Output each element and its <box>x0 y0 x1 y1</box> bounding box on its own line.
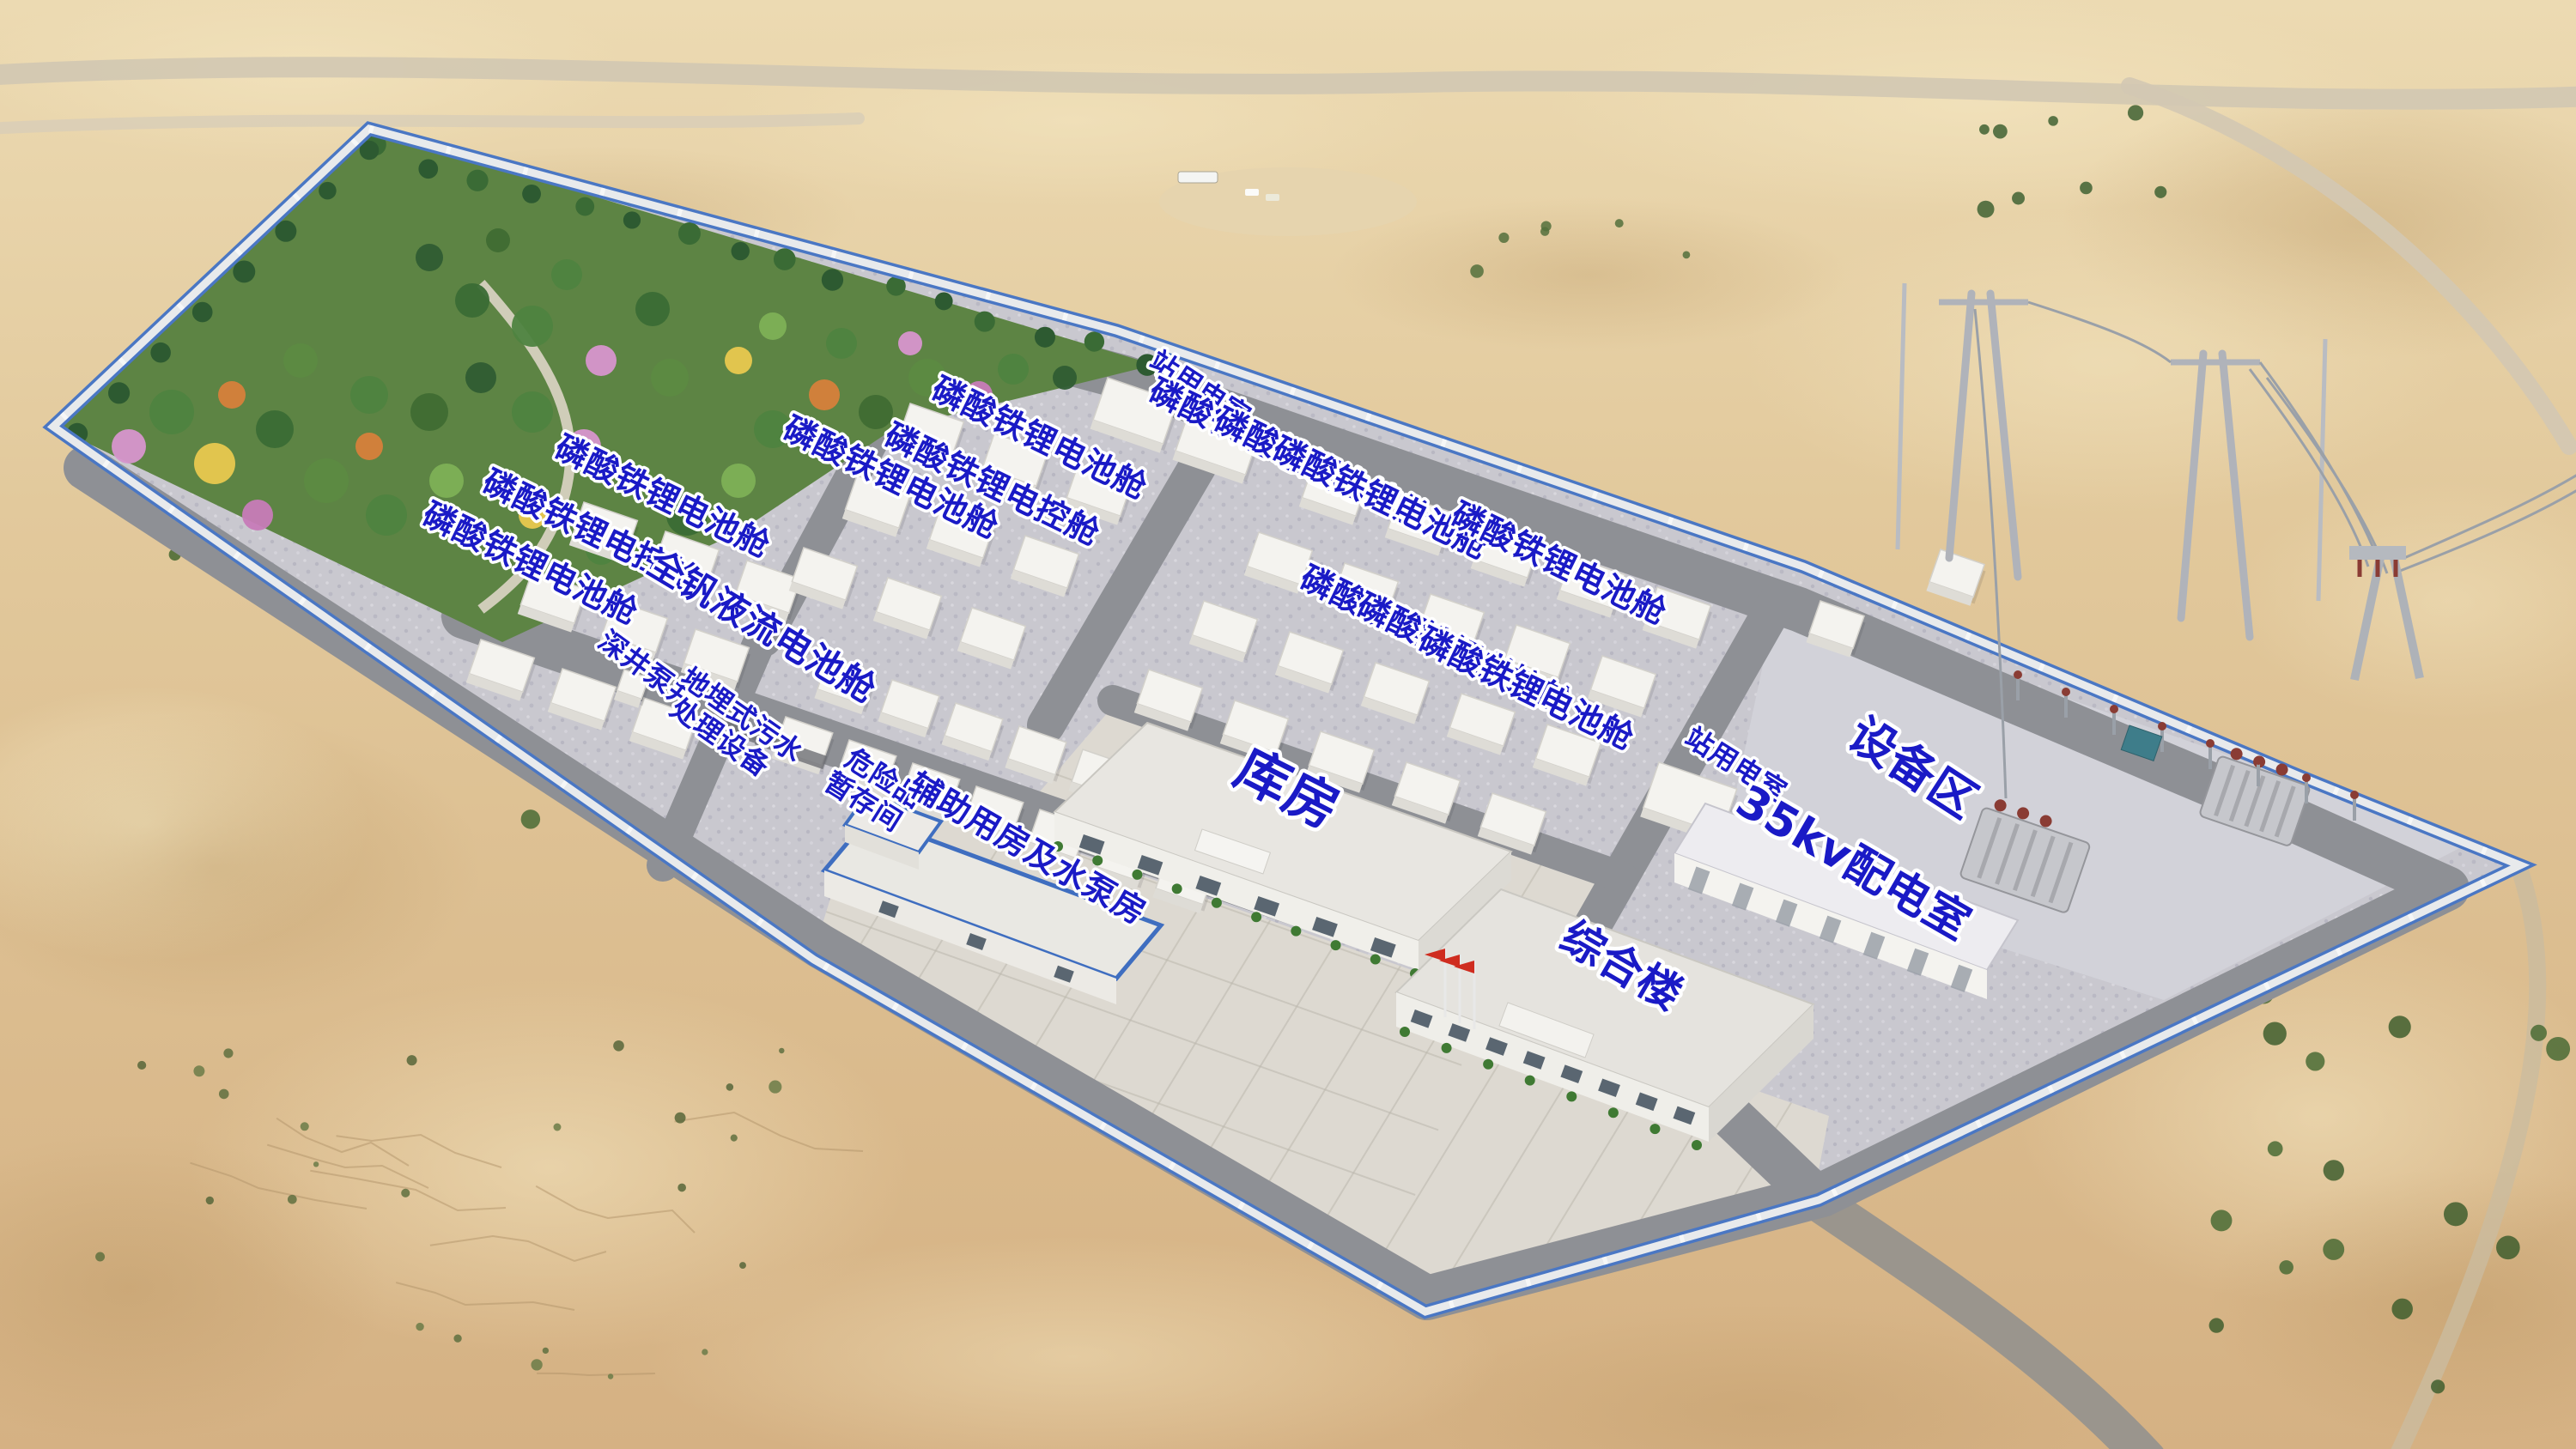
shrub <box>1978 201 1995 218</box>
tree <box>826 328 857 359</box>
shrub <box>1498 233 1509 243</box>
conifer-tree <box>319 182 337 200</box>
shrub <box>2209 1318 2224 1332</box>
conifer-tree <box>233 260 255 282</box>
shrub <box>2391 1299 2412 1319</box>
shrub <box>219 1089 229 1100</box>
conifer-tree <box>1035 327 1055 348</box>
tree <box>998 354 1029 385</box>
shrub <box>2496 1236 2520 1260</box>
conifer-tree <box>774 248 796 270</box>
tree <box>586 345 617 376</box>
hedge <box>1483 1059 1493 1070</box>
shrub <box>2389 1016 2411 1038</box>
shrub <box>608 1373 613 1379</box>
shrub <box>2080 182 2093 195</box>
tree <box>651 359 689 397</box>
tree <box>355 433 383 460</box>
tree <box>256 410 294 448</box>
hedge <box>1649 1124 1660 1134</box>
shrub <box>313 1161 319 1167</box>
shrub <box>2263 1022 2287 1045</box>
shrub <box>401 1189 410 1197</box>
shrub <box>2530 1025 2547 1041</box>
shrub <box>95 1252 105 1262</box>
insulator-tip <box>2014 670 2022 679</box>
car <box>1245 189 1259 196</box>
conifer-tree <box>575 197 594 216</box>
insulator-tip <box>2158 722 2166 731</box>
tree <box>898 331 922 355</box>
shrub <box>521 809 540 828</box>
shrub <box>2324 1160 2344 1180</box>
tree <box>512 306 553 347</box>
hedge <box>1525 1076 1535 1086</box>
tree <box>194 443 235 484</box>
shrub <box>2128 105 2143 120</box>
tree <box>112 429 146 464</box>
shrub <box>137 1061 146 1070</box>
shrub <box>1541 221 1552 231</box>
car <box>1266 194 1279 201</box>
tree <box>455 283 489 318</box>
shrub <box>1470 264 1484 278</box>
shrub <box>2012 192 2025 205</box>
tree <box>304 458 349 503</box>
conifer-tree <box>975 312 995 332</box>
shrub <box>1993 124 2008 139</box>
shrub <box>206 1197 214 1204</box>
shrub <box>543 1348 549 1354</box>
tree <box>859 395 893 429</box>
shrub <box>2546 1037 2570 1061</box>
conifer-tree <box>418 159 438 179</box>
shrub <box>675 1113 686 1124</box>
conifer-tree <box>150 343 171 363</box>
shrub <box>193 1065 204 1076</box>
hedge <box>1132 870 1142 880</box>
conifer-tree <box>822 269 843 290</box>
hedge <box>1172 883 1182 894</box>
tree <box>410 393 448 431</box>
tree <box>366 494 407 536</box>
conifer-tree <box>678 222 701 245</box>
insulator-tip <box>2302 773 2311 782</box>
hedge <box>1370 955 1381 965</box>
tree <box>1053 366 1077 390</box>
aerial-rendering: 站用电室 磷酸铁锂电池舱 磷酸铁锂电控舱 磷酸铁锂电池舱 磷酸铁锂电池舱 磷酸铁… <box>0 0 2576 1449</box>
tree <box>721 464 756 498</box>
hedge <box>1212 898 1222 908</box>
shrub <box>731 1135 738 1142</box>
shrub <box>2154 186 2166 198</box>
hedge <box>1692 1140 1702 1150</box>
tree <box>416 244 443 271</box>
dune <box>1743 206 2464 515</box>
conifer-tree <box>623 211 641 228</box>
hedge <box>1092 855 1103 865</box>
bus <box>1178 172 1218 183</box>
shrub <box>702 1349 708 1355</box>
shrub <box>2306 1052 2324 1070</box>
tree <box>149 390 194 434</box>
conifer-tree <box>466 170 488 191</box>
shrub <box>1683 252 1691 259</box>
shrub <box>779 1048 784 1053</box>
tree <box>759 312 787 340</box>
shrub <box>2279 1260 2293 1275</box>
hedge <box>1251 912 1261 922</box>
insulator-tip <box>2110 705 2118 713</box>
conifer-tree <box>935 292 953 310</box>
tree <box>551 259 582 290</box>
shrub <box>453 1335 461 1343</box>
hedge <box>1331 940 1341 950</box>
hedge <box>1608 1107 1619 1118</box>
hedge <box>1566 1091 1577 1101</box>
shrub <box>1615 219 1624 227</box>
hedge <box>1442 1043 1452 1053</box>
shrub <box>677 1184 686 1192</box>
tree <box>429 464 464 498</box>
insulator-tip <box>2350 791 2359 799</box>
tree <box>465 362 496 393</box>
insulator-tip <box>2206 739 2215 748</box>
shrub <box>769 1081 781 1094</box>
tree <box>218 381 246 409</box>
scene-svg: 站用电室 磷酸铁锂电池舱 磷酸铁锂电控舱 磷酸铁锂电池舱 磷酸铁锂电池舱 磷酸铁… <box>0 0 2576 1449</box>
shrub <box>1979 124 1990 135</box>
tree <box>283 343 318 378</box>
conifer-tree <box>108 382 130 403</box>
shrub <box>301 1122 309 1131</box>
hedge <box>1400 1027 1410 1037</box>
tree <box>486 228 510 252</box>
shrub <box>531 1359 542 1370</box>
shrub <box>2268 1141 2283 1156</box>
tree <box>350 376 388 414</box>
conifer-tree <box>1084 331 1104 351</box>
shrub <box>407 1055 417 1065</box>
shrub <box>553 1124 561 1131</box>
conifer-tree <box>192 302 213 323</box>
tree <box>512 391 553 433</box>
tree <box>635 292 670 326</box>
tree <box>809 379 840 410</box>
shrub <box>223 1048 233 1058</box>
conifer-tree <box>522 185 541 203</box>
shrub <box>416 1323 423 1331</box>
shrub <box>2211 1210 2233 1231</box>
shrub <box>2048 116 2058 126</box>
conifer-tree <box>732 242 750 260</box>
shrub <box>2323 1239 2344 1260</box>
tree <box>242 500 273 530</box>
dune <box>1331 197 1846 352</box>
shrub <box>2444 1202 2468 1226</box>
shrub <box>726 1083 734 1091</box>
shrub <box>739 1262 746 1269</box>
shrub <box>288 1195 297 1204</box>
insulator-tip <box>2062 688 2070 696</box>
shrub <box>2431 1379 2445 1393</box>
insulator-tip <box>2254 756 2263 765</box>
hedge <box>1291 926 1301 937</box>
tree <box>725 347 752 374</box>
shrub <box>613 1040 624 1052</box>
tower-crossarm <box>2349 546 2406 560</box>
